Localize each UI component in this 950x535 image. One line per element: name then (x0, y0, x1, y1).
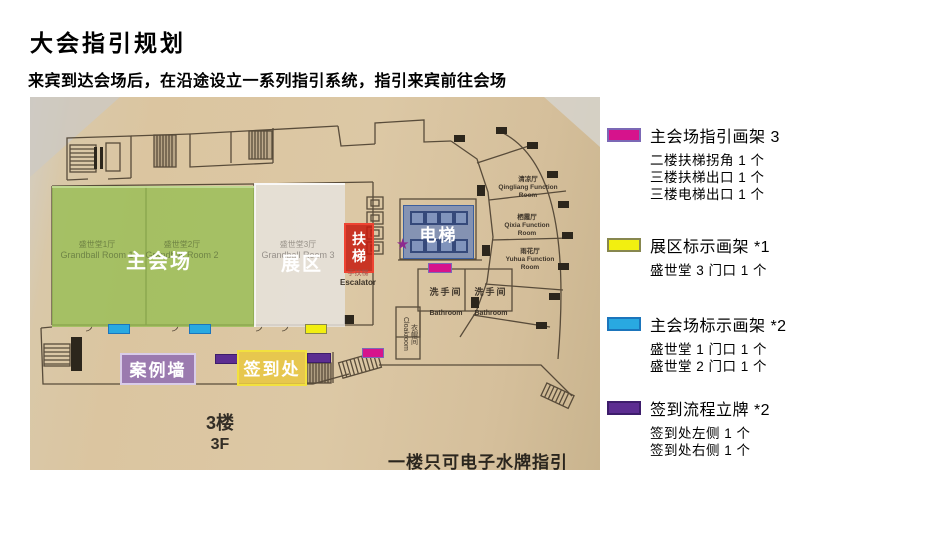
legend-label: 主会场标示画架 *2 (650, 312, 787, 336)
checkin-label: 签到处 (239, 355, 305, 380)
legend-detail: 三楼电梯出口 1 个 (650, 186, 937, 203)
marker-expo-sign (305, 324, 327, 334)
legend-detail: 盛世堂 2 门口 1 个 (650, 358, 937, 375)
escalator-label: 梯 (352, 248, 366, 265)
checkin-box: 签到处 (237, 350, 307, 386)
marker-mainhall-sign-1 (108, 324, 130, 334)
escalator-label: 扶 (352, 231, 366, 248)
escalator-overlay: 扶 梯 (344, 223, 374, 273)
legend-swatch-blue (607, 317, 641, 331)
marker-checkin-flow-right (307, 353, 331, 363)
bathroom1-label: 洗手间 Bathroom (425, 281, 467, 321)
legend: 主会场指引画架 3 二楼扶梯拐角 1 个 三楼扶梯出口 1 个 三楼电梯出口 1… (607, 105, 942, 505)
main-hall-label: 主会场 (126, 245, 192, 274)
slide: 大会指引规划 来宾到达会场后，在沿途设立一系列指引系统，指引来宾前往会场 (0, 0, 950, 535)
escalator-caption-en: Escalator (333, 278, 383, 288)
legend-details: 盛世堂 1 门口 1 个 盛世堂 2 门口 1 个 (607, 341, 937, 375)
legend-swatch-yellow (607, 238, 641, 252)
bathroom2-label: 洗手间 Bathroom (470, 281, 512, 321)
marker-checkin-flow-left (215, 354, 238, 364)
legend-detail: 二楼扶梯拐角 1 个 (650, 152, 937, 169)
legend-details: 盛世堂 3 门口 1 个 (607, 262, 937, 279)
legend-details: 二楼扶梯拐角 1 个 三楼扶梯出口 1 个 三楼电梯出口 1 个 (607, 152, 937, 203)
marker-guide-escalator-exit (362, 348, 384, 358)
marker-guide-elevator-exit (428, 263, 452, 273)
legend-details: 签到处左侧 1 个 签到处右侧 1 个 (607, 425, 937, 459)
legend-label: 展区标示画架 *1 (650, 233, 770, 257)
star-marker: ★ (396, 235, 409, 253)
legend-group-mainhall-easel: 主会场标示画架 *2 盛世堂 1 门口 1 个 盛世堂 2 门口 1 个 (607, 312, 937, 375)
qixia-room-label: 栖霞厅 Qixia Function Room (496, 214, 558, 238)
first-floor-note: 一楼只可电子水牌指引 (382, 448, 574, 470)
legend-group-checkin-stand: 签到流程立牌 *2 签到处左侧 1 个 签到处右侧 1 个 (607, 396, 937, 459)
qingliang-room-label: 清凉厅 Qingliang Function Room (498, 176, 558, 200)
legend-group-expo-easel: 展区标示画架 *1 盛世堂 3 门口 1 个 (607, 233, 937, 279)
legend-detail: 签到处左侧 1 个 (650, 425, 937, 442)
page-subtitle: 来宾到达会场后，在沿途设立一系列指引系统，指引来宾前往会场 (28, 67, 507, 91)
floorplan-photo: 盛世堂1厅 Grandball Room 1 盛世堂2厅 Grandball R… (30, 97, 600, 470)
floor-label: 3楼 3F (180, 413, 260, 455)
legend-swatch-purple (607, 401, 641, 415)
elevator-label: 电梯 (404, 221, 473, 246)
legend-detail: 三楼扶梯出口 1 个 (650, 169, 937, 186)
case-wall-box: 案例墙 (120, 353, 196, 385)
expo-zone-label: 展区 (281, 249, 323, 276)
marker-mainhall-sign-2 (189, 324, 211, 334)
legend-detail: 盛世堂 1 门口 1 个 (650, 341, 937, 358)
legend-swatch-magenta (607, 128, 641, 142)
legend-label: 签到流程立牌 *2 (650, 396, 770, 420)
elevator-overlay: 电梯 (403, 205, 474, 259)
page-title: 大会指引规划 (30, 24, 186, 58)
legend-detail: 签到处右侧 1 个 (650, 442, 937, 459)
legend-group-guide-easel: 主会场指引画架 3 二楼扶梯拐角 1 个 三楼扶梯出口 1 个 三楼电梯出口 1… (607, 123, 937, 203)
room-label-grandball1: 盛世堂1厅 Grandball Room 1 (57, 240, 137, 261)
yuhua-room-label: 雨花厅 Yuhua Function Room (504, 248, 556, 272)
cloakroom-label: 衣帽间 Cloakroom (400, 310, 418, 358)
case-wall-label: 案例墙 (122, 356, 194, 381)
legend-label: 主会场指引画架 3 (650, 123, 780, 147)
legend-detail: 盛世堂 3 门口 1 个 (650, 262, 937, 279)
